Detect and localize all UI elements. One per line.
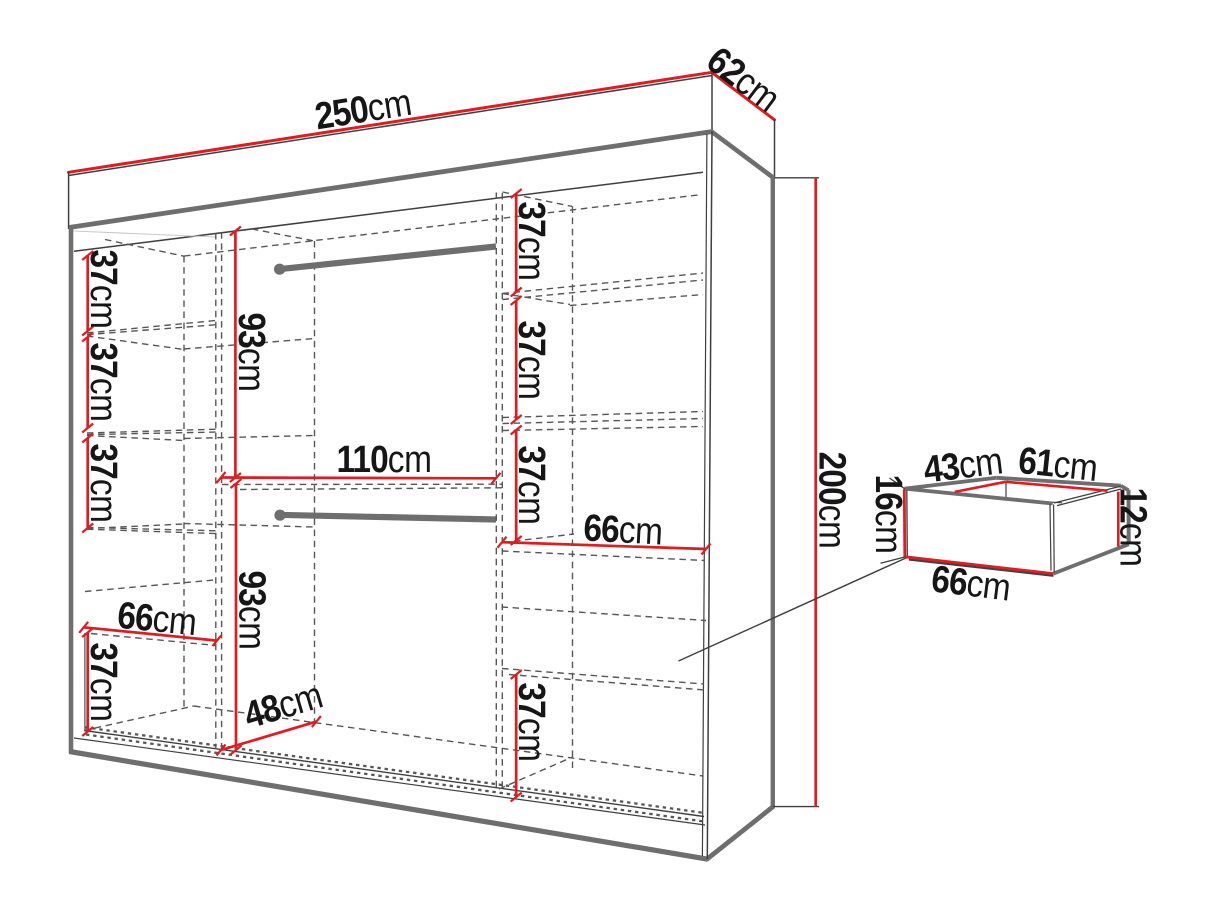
svg-text:93cm: 93cm <box>231 570 273 649</box>
svg-text:37cm: 37cm <box>511 682 553 761</box>
svg-text:37cm: 37cm <box>83 642 125 721</box>
svg-text:37cm: 37cm <box>83 249 125 328</box>
svg-text:93cm: 93cm <box>231 312 273 391</box>
svg-text:66cm: 66cm <box>116 594 199 644</box>
svg-text:37cm: 37cm <box>511 320 553 399</box>
svg-text:12cm: 12cm <box>1112 487 1154 566</box>
svg-text:110cm: 110cm <box>337 438 432 480</box>
svg-text:61cm: 61cm <box>1016 439 1099 490</box>
svg-text:16cm: 16cm <box>868 474 910 553</box>
svg-text:37cm: 37cm <box>83 443 125 522</box>
svg-text:37cm: 37cm <box>511 201 553 280</box>
svg-text:37cm: 37cm <box>511 445 553 524</box>
svg-text:37cm: 37cm <box>83 342 125 421</box>
svg-text:66cm: 66cm <box>582 506 663 553</box>
svg-text:200cm: 200cm <box>811 452 853 549</box>
